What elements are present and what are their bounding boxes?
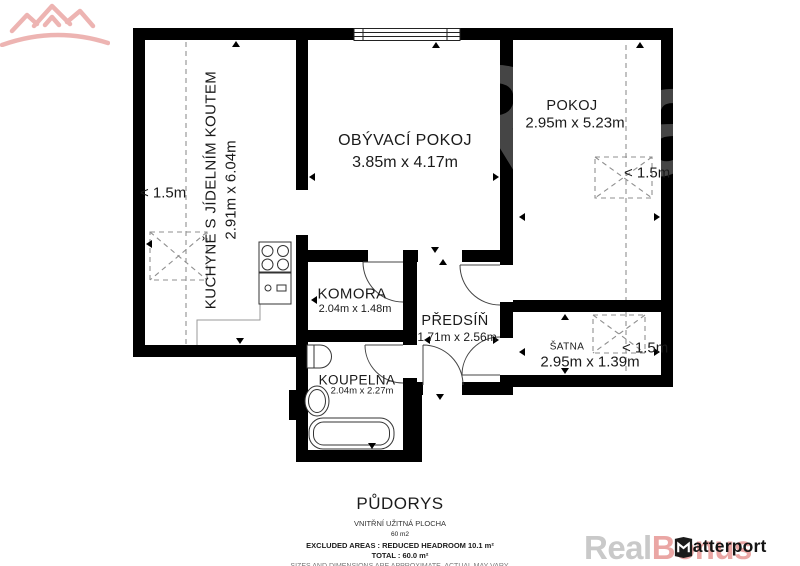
kitchen-counter [197, 304, 260, 345]
total-area: TOTAL : 60.0 m² [290, 551, 509, 560]
toilet [305, 386, 329, 416]
floor-plan-page: RealBonus [0, 0, 800, 566]
watermark-real: Real [584, 529, 652, 566]
floor-plan-linework [0, 0, 800, 566]
plan-area: 60 m2 [290, 531, 509, 538]
headroom-label-bedroom: < 1.5m [624, 165, 670, 182]
room-name-bedroom: POKOJ [546, 98, 597, 114]
room-dimensions-bedroom: 2.95m x 5.23m [525, 115, 624, 132]
room-name: KUCHYNĚ S JÍDELNÍM KOUTEM [203, 71, 220, 309]
matterport-logo: Matterport [672, 536, 767, 557]
excluded-areas: EXCLUDED AREAS : REDUCED HEADROOM 10.1 m… [290, 541, 509, 550]
matterport-icon [672, 536, 695, 559]
room-dimensions-pantry: 2.04m x 1.48m [319, 303, 392, 315]
realbonus-roofs-icon [0, 0, 110, 47]
bathtub [309, 418, 394, 449]
room-dimensions-hallway: 1.71m x 2.56m [417, 330, 496, 344]
room-dimensions-bathroom: 2.04m x 2.27m [331, 386, 394, 397]
plan-subtitle: VNITŘNÍ UŽITNÁ PLOCHA [290, 519, 509, 528]
headroom-label-kitchen: < 1.5m [140, 185, 186, 202]
room-label-kitchen: KUCHYNĚ S JÍDELNÍM KOUTEM 2.91m x 6.04m [203, 71, 240, 309]
room-name-living: OBÝVACÍ POKOJ [338, 132, 472, 150]
plan-title: PŮDORYS [290, 494, 509, 514]
sink [307, 345, 332, 368]
room-dimensions: 2.91m x 6.04m [223, 71, 240, 309]
room-name-closet: ŠATNA [550, 342, 585, 353]
room-name-hallway: PŘEDSÍŇ [421, 313, 488, 329]
room-name-pantry: KOMORA [317, 286, 386, 303]
kitchen-cabinet [259, 273, 291, 304]
footer-summary: PŮDORYS VNITŘNÍ UŽITNÁ PLOCHA 60 m2 EXCL… [290, 494, 509, 566]
headroom-label-closet: < 1.5m [622, 340, 668, 357]
window [354, 29, 460, 41]
room-dimensions-living: 3.85m x 4.17m [352, 154, 458, 172]
stove [259, 242, 291, 272]
